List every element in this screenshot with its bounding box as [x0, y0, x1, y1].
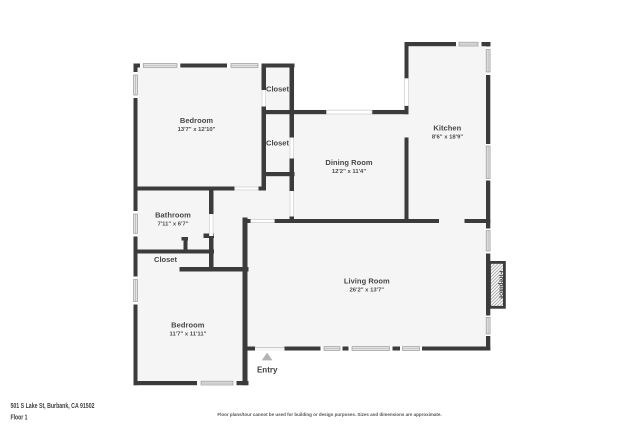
- svg-text:Bedroom: Bedroom: [180, 116, 214, 125]
- svg-text:Fireplace: Fireplace: [497, 271, 504, 300]
- svg-text:Floor 1: Floor 1: [11, 414, 28, 421]
- svg-text:26'2" x 13'7": 26'2" x 13'7": [350, 288, 385, 294]
- svg-text:501 S Lake St, Burbank, CA 915: 501 S Lake St, Burbank, CA 91502: [11, 403, 95, 410]
- svg-text:8'6" x 18'9": 8'6" x 18'9": [432, 135, 464, 141]
- svg-text:13'7" x 12'10": 13'7" x 12'10": [178, 127, 216, 133]
- svg-text:12'2" x 11'4": 12'2" x 11'4": [332, 169, 366, 175]
- svg-text:Closet: Closet: [266, 139, 289, 148]
- svg-text:Closet: Closet: [154, 255, 177, 264]
- svg-text:Bedroom: Bedroom: [171, 320, 205, 329]
- svg-text:Dining Room: Dining Room: [325, 158, 372, 167]
- svg-text:11'7" x 11'11": 11'7" x 11'11": [170, 332, 207, 338]
- svg-text:Floor plans/tour cannot be use: Floor plans/tour cannot be used for buil…: [217, 412, 441, 417]
- svg-text:Kitchen: Kitchen: [433, 124, 461, 133]
- svg-text:Living Room: Living Room: [344, 276, 390, 285]
- svg-text:Bathroom: Bathroom: [155, 210, 191, 219]
- svg-text:7'11" x 6'7": 7'11" x 6'7": [158, 222, 189, 228]
- svg-text:Closet: Closet: [266, 85, 289, 94]
- svg-text:Entry: Entry: [257, 366, 278, 375]
